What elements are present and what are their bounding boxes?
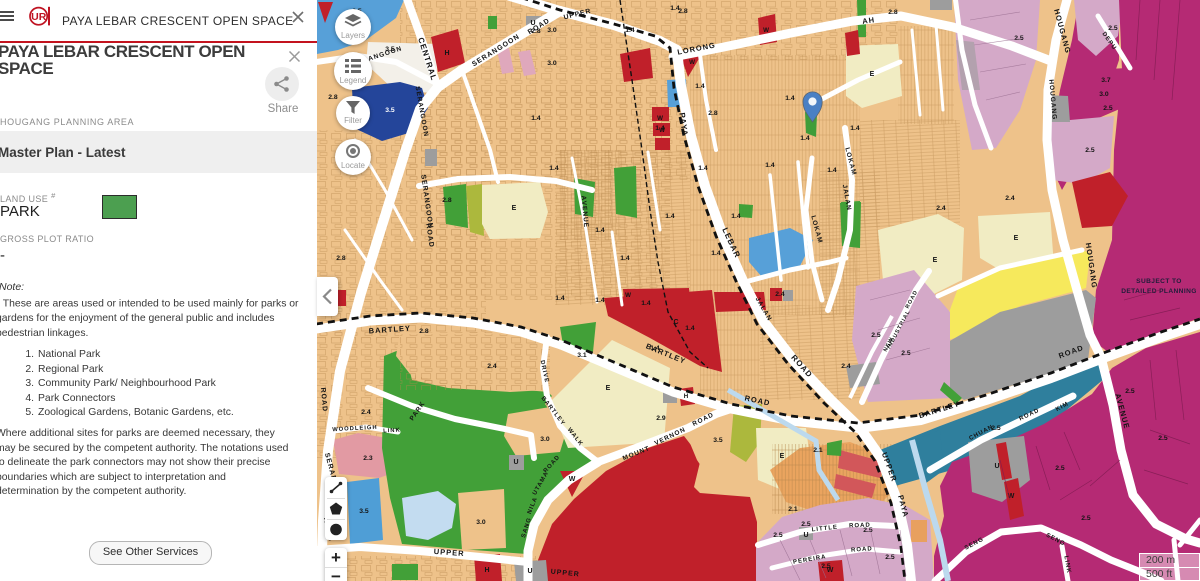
svg-text:2.4: 2.4: [775, 291, 785, 298]
svg-text:2.3: 2.3: [363, 455, 373, 462]
svg-text:2.4: 2.4: [936, 205, 946, 212]
svg-text:E: E: [606, 385, 611, 392]
svg-text:E: E: [1014, 235, 1019, 242]
svg-text:1.4: 1.4: [711, 250, 721, 257]
svg-text:2.5: 2.5: [1055, 465, 1065, 472]
svg-text:2.8: 2.8: [336, 255, 346, 262]
svg-text:H: H: [444, 50, 449, 57]
svg-text:1.4: 1.4: [555, 295, 565, 302]
svg-text:3.0: 3.0: [540, 436, 550, 443]
svg-text:1.4: 1.4: [765, 162, 775, 169]
svg-text:E: E: [933, 257, 938, 264]
svg-text:3.0: 3.0: [476, 519, 486, 526]
svg-text:U: U: [803, 532, 808, 539]
svg-text:3.5: 3.5: [359, 508, 369, 515]
svg-text:3.1: 3.1: [577, 352, 587, 359]
svg-text:U: U: [513, 459, 518, 466]
svg-text:2.5: 2.5: [773, 532, 783, 539]
svg-text:W: W: [689, 59, 695, 66]
svg-text:3.0: 3.0: [1099, 91, 1109, 98]
svg-text:3.5: 3.5: [385, 107, 395, 114]
svg-text:1.4: 1.4: [595, 297, 605, 304]
svg-text:2.5: 2.5: [1125, 388, 1135, 395]
svg-text:H: H: [684, 393, 689, 400]
svg-text:W: W: [827, 567, 834, 574]
svg-text:1.4: 1.4: [549, 165, 559, 172]
svg-text:DETAILED PLANNING: DETAILED PLANNING: [1121, 288, 1197, 295]
svg-text:2.5: 2.5: [885, 554, 895, 561]
svg-text:ROAD: ROAD: [849, 523, 871, 530]
svg-text:U: U: [994, 463, 999, 470]
svg-text:2.5: 2.5: [1081, 515, 1091, 522]
svg-text:3.0: 3.0: [547, 60, 557, 67]
svg-text:1.4: 1.4: [665, 213, 675, 220]
svg-text:1.4: 1.4: [620, 255, 630, 262]
svg-text:1.4: 1.4: [695, 83, 705, 90]
svg-text:1.4: 1.4: [785, 95, 795, 102]
svg-text:1.4: 1.4: [850, 125, 860, 132]
svg-text:3.7: 3.7: [1101, 77, 1111, 84]
svg-text:W: W: [657, 115, 663, 122]
svg-text:2.4: 2.4: [361, 409, 371, 416]
svg-text:2.9: 2.9: [656, 415, 666, 422]
svg-text:2.5: 2.5: [1108, 25, 1118, 32]
svg-text:1.4: 1.4: [800, 135, 810, 142]
svg-text:2.8: 2.8: [328, 94, 338, 101]
svg-text:1.4: 1.4: [531, 115, 541, 122]
svg-text:W: W: [659, 127, 665, 134]
svg-text:2.5: 2.5: [871, 332, 881, 339]
svg-text:AH: AH: [862, 15, 876, 26]
svg-text:E: E: [512, 205, 517, 212]
svg-text:1.4: 1.4: [685, 325, 695, 332]
svg-text:1.4: 1.4: [698, 165, 708, 172]
svg-text:C: C: [673, 319, 678, 326]
svg-text:3.5: 3.5: [713, 437, 723, 444]
svg-text:1.4: 1.4: [641, 300, 651, 307]
svg-text:1.4: 1.4: [731, 213, 741, 220]
svg-text:2.8: 2.8: [888, 9, 898, 16]
svg-text:2.8: 2.8: [442, 197, 452, 204]
svg-text:E: E: [780, 453, 785, 460]
svg-text:U: U: [527, 568, 532, 575]
svg-text:LINK: LINK: [383, 428, 401, 435]
svg-text:2.1: 2.1: [788, 506, 798, 513]
svg-text:1.4: 1.4: [595, 227, 605, 234]
svg-text:W: W: [625, 292, 631, 299]
svg-text:1.4: 1.4: [670, 5, 680, 12]
svg-text:2.4: 2.4: [841, 363, 851, 370]
svg-text:2.8: 2.8: [708, 110, 718, 117]
svg-text:UR: UR: [31, 11, 47, 23]
svg-text:2.1: 2.1: [813, 447, 823, 454]
svg-text:2.5: 2.5: [801, 521, 811, 528]
svg-text:2.8: 2.8: [419, 328, 429, 335]
svg-text:E: E: [870, 71, 875, 78]
svg-text:1.4: 1.4: [827, 167, 837, 174]
svg-text:2.5: 2.5: [1103, 105, 1113, 112]
svg-text:W: W: [569, 476, 576, 483]
svg-text:W: W: [763, 27, 769, 34]
svg-text:1.4: 1.4: [625, 27, 635, 34]
svg-text:H: H: [484, 567, 489, 574]
svg-text:3.0: 3.0: [547, 27, 557, 34]
svg-text:SUBJECT TO: SUBJECT TO: [1136, 278, 1182, 285]
svg-text:2.5: 2.5: [1085, 147, 1095, 154]
svg-text:2.4: 2.4: [1005, 195, 1015, 202]
svg-text:2.4: 2.4: [487, 363, 497, 370]
